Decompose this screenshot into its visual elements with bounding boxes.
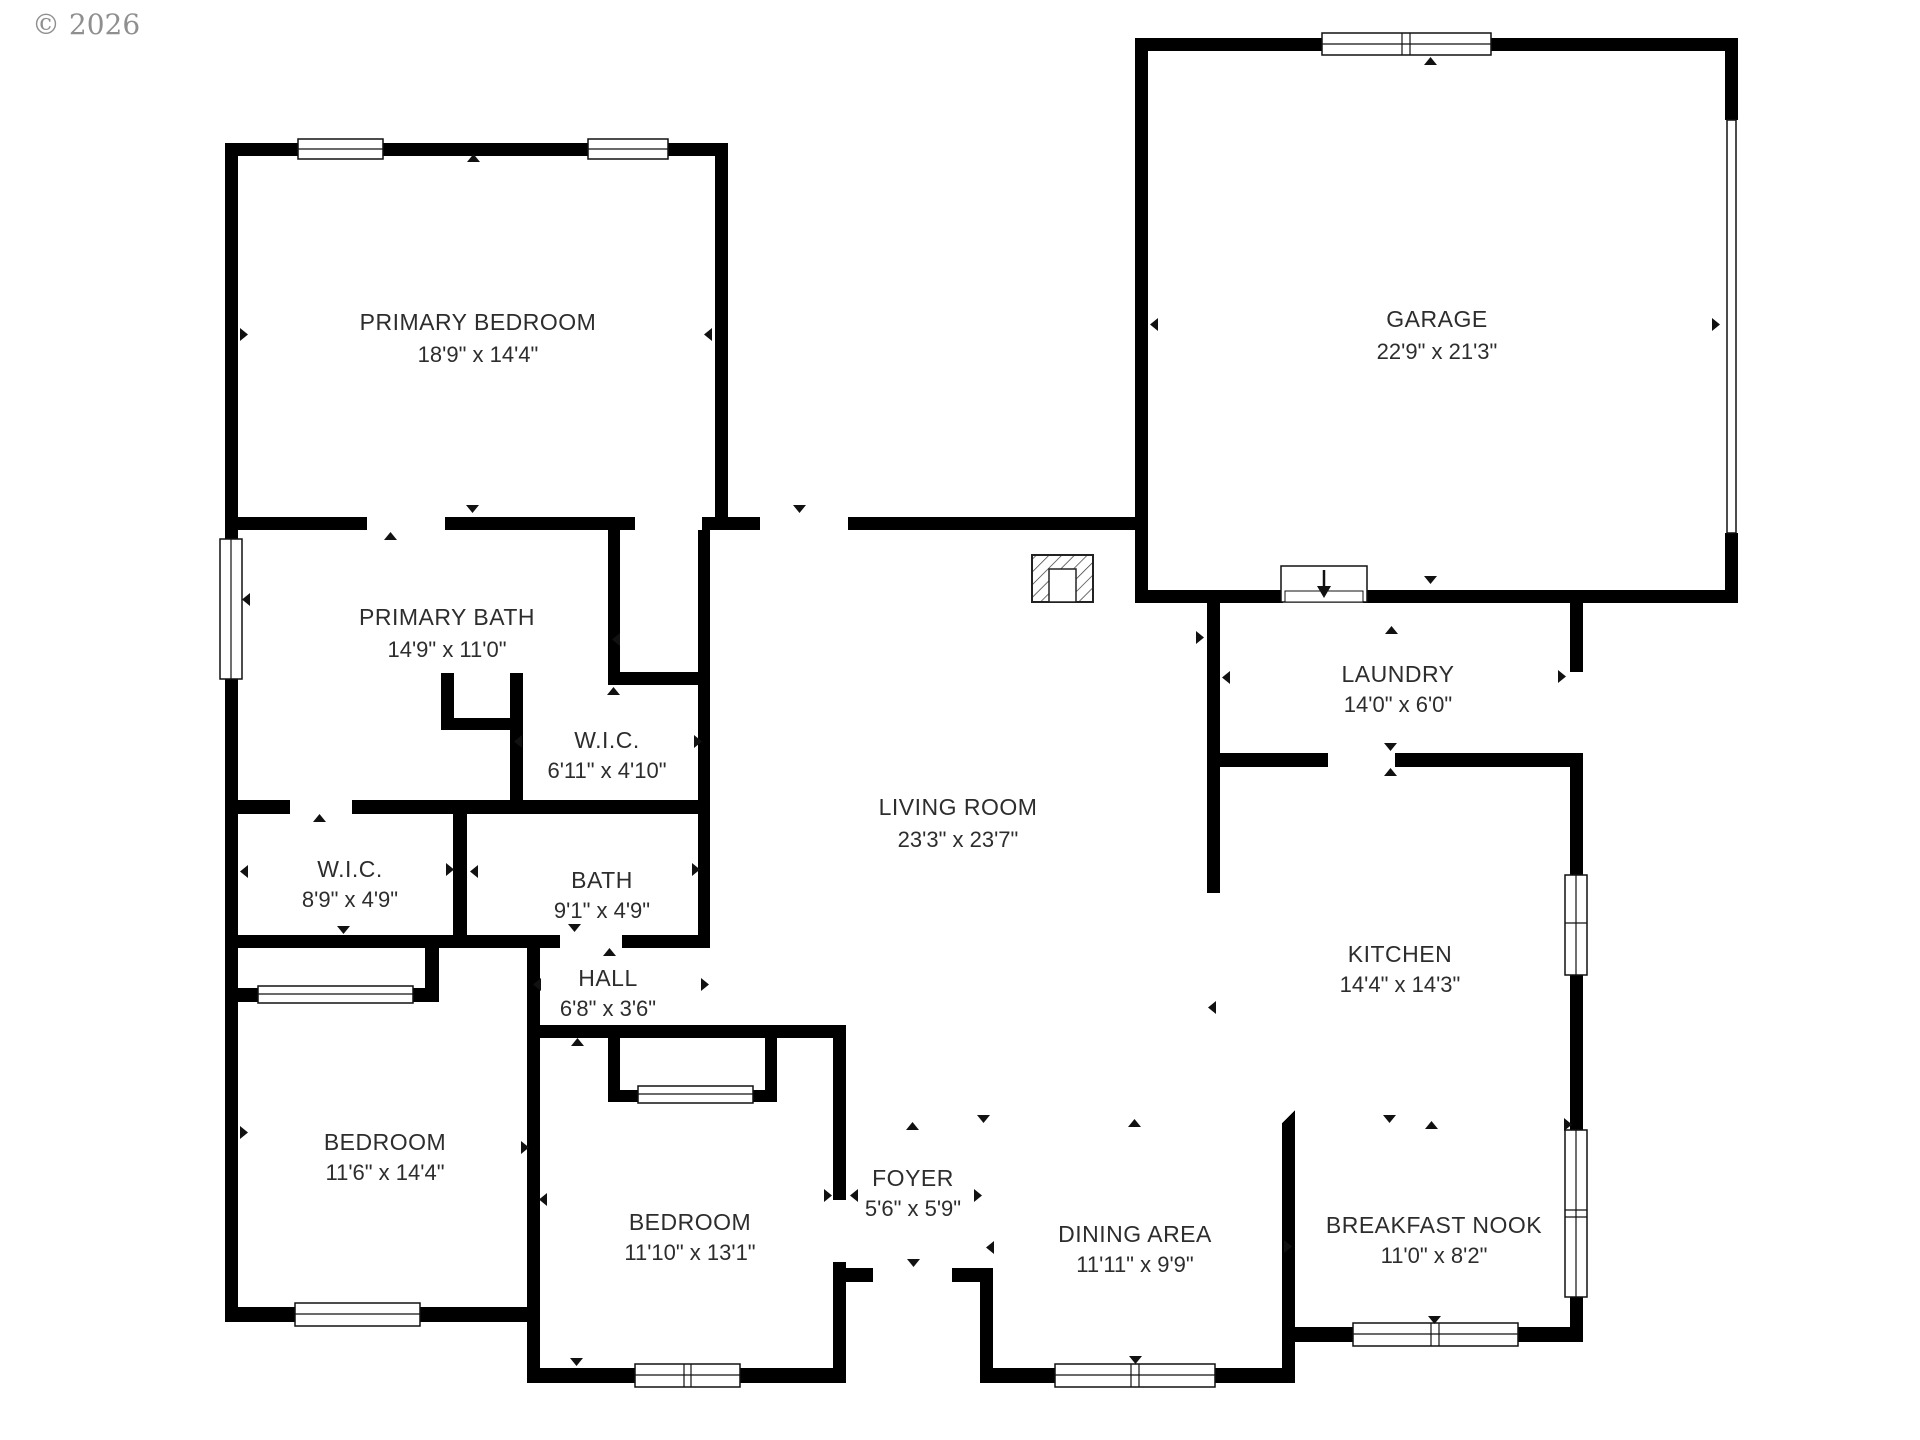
room-dims-garage: 22'9" x 21'3" <box>1377 339 1498 364</box>
room-label-primary-bath: PRIMARY BATH <box>359 604 535 630</box>
room-labels: PRIMARY BEDROOM 18'9" x 14'4" GARAGE 22'… <box>302 306 1542 1277</box>
room-dims-bath: 9'1" x 4'9" <box>554 898 650 923</box>
room-dims-wic-primary: 6'11" x 4'10" <box>547 758 666 783</box>
room-label-wic-primary: W.I.C. <box>574 727 640 753</box>
room-label-foyer: FOYER <box>872 1165 954 1191</box>
copyright-text: © 2026 <box>32 8 140 41</box>
room-dims-breakfast-nook: 11'0" x 8'2" <box>1381 1243 1488 1268</box>
room-label-wic-2: W.I.C. <box>317 856 383 882</box>
room-dims-laundry: 14'0" x 6'0" <box>1344 692 1452 717</box>
room-label-bedroom-2: BEDROOM <box>629 1209 751 1235</box>
room-dims-primary-bath: 14'9" x 11'0" <box>387 637 506 662</box>
walls <box>225 38 1738 1383</box>
room-label-hall: HALL <box>578 965 638 991</box>
fireplace-icon <box>1032 555 1093 602</box>
room-dims-wic-2: 8'9" x 4'9" <box>302 887 398 912</box>
floor-plan: PRIMARY BEDROOM 18'9" x 14'4" GARAGE 22'… <box>0 0 1920 1440</box>
room-dims-primary-bedroom: 18'9" x 14'4" <box>418 342 539 367</box>
room-dims-bedroom-1: 11'6" x 14'4" <box>325 1160 444 1185</box>
room-label-laundry: LAUNDRY <box>1342 661 1455 687</box>
garage-step <box>1281 566 1367 602</box>
room-label-primary-bedroom: PRIMARY BEDROOM <box>360 309 597 335</box>
room-label-bath: BATH <box>571 867 633 893</box>
room-dims-living-room: 23'3" x 23'7" <box>898 827 1019 852</box>
room-label-dining-area: DINING AREA <box>1058 1221 1212 1247</box>
room-label-kitchen: KITCHEN <box>1348 941 1452 967</box>
room-dims-dining-area: 11'11" x 9'9" <box>1076 1252 1193 1277</box>
room-dims-bedroom-2: 11'10" x 13'1" <box>624 1240 755 1265</box>
room-label-bedroom-1: BEDROOM <box>324 1129 446 1155</box>
room-label-living-room: LIVING ROOM <box>879 794 1038 820</box>
floor-plan-svg: PRIMARY BEDROOM 18'9" x 14'4" GARAGE 22'… <box>0 0 1920 1440</box>
room-dims-kitchen: 14'4" x 14'3" <box>1340 972 1461 997</box>
room-label-garage: GARAGE <box>1386 306 1487 332</box>
garage-door <box>1727 120 1736 533</box>
room-dims-foyer: 5'6" x 5'9" <box>865 1196 961 1221</box>
room-label-breakfast-nook: BREAKFAST NOOK <box>1326 1212 1542 1238</box>
door-marker-icons <box>240 57 1720 1366</box>
room-dims-hall: 6'8" x 3'6" <box>560 996 656 1021</box>
